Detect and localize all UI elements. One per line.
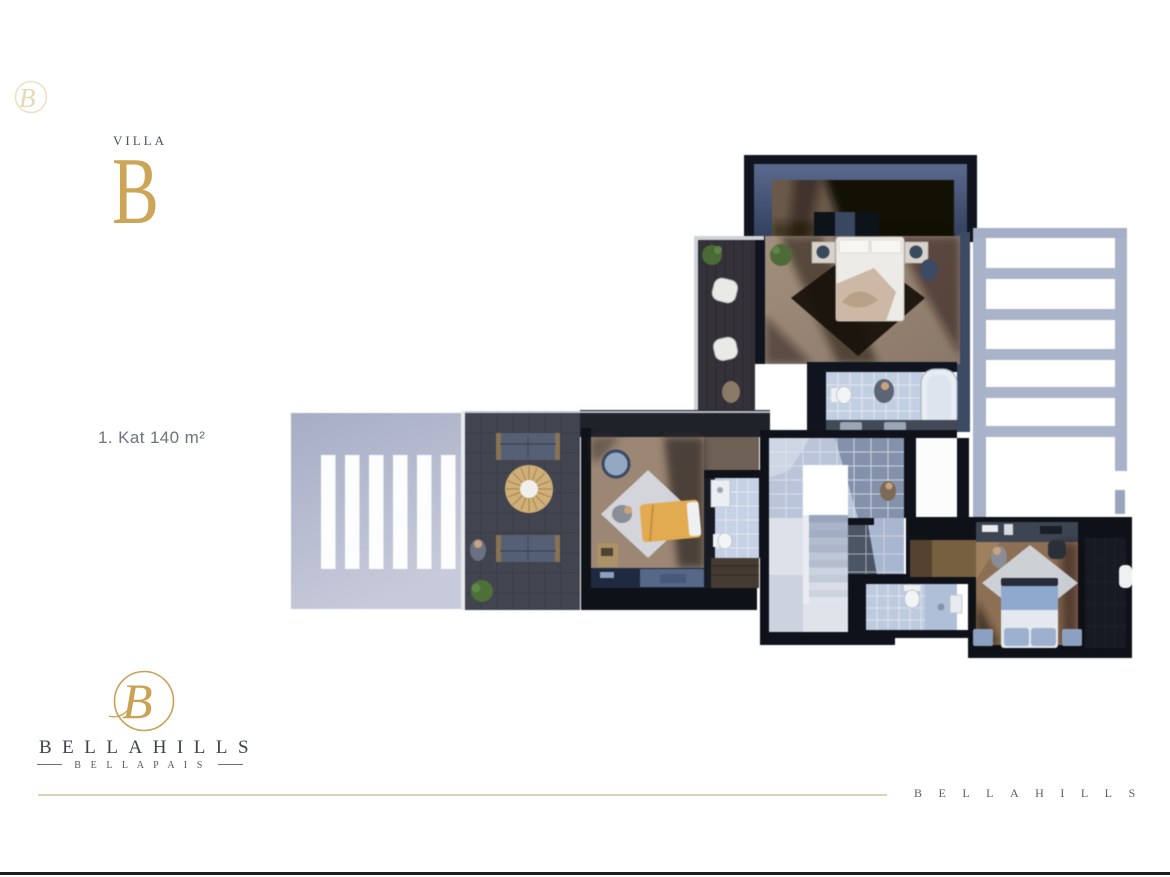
svg-text:B: B [122,673,153,729]
